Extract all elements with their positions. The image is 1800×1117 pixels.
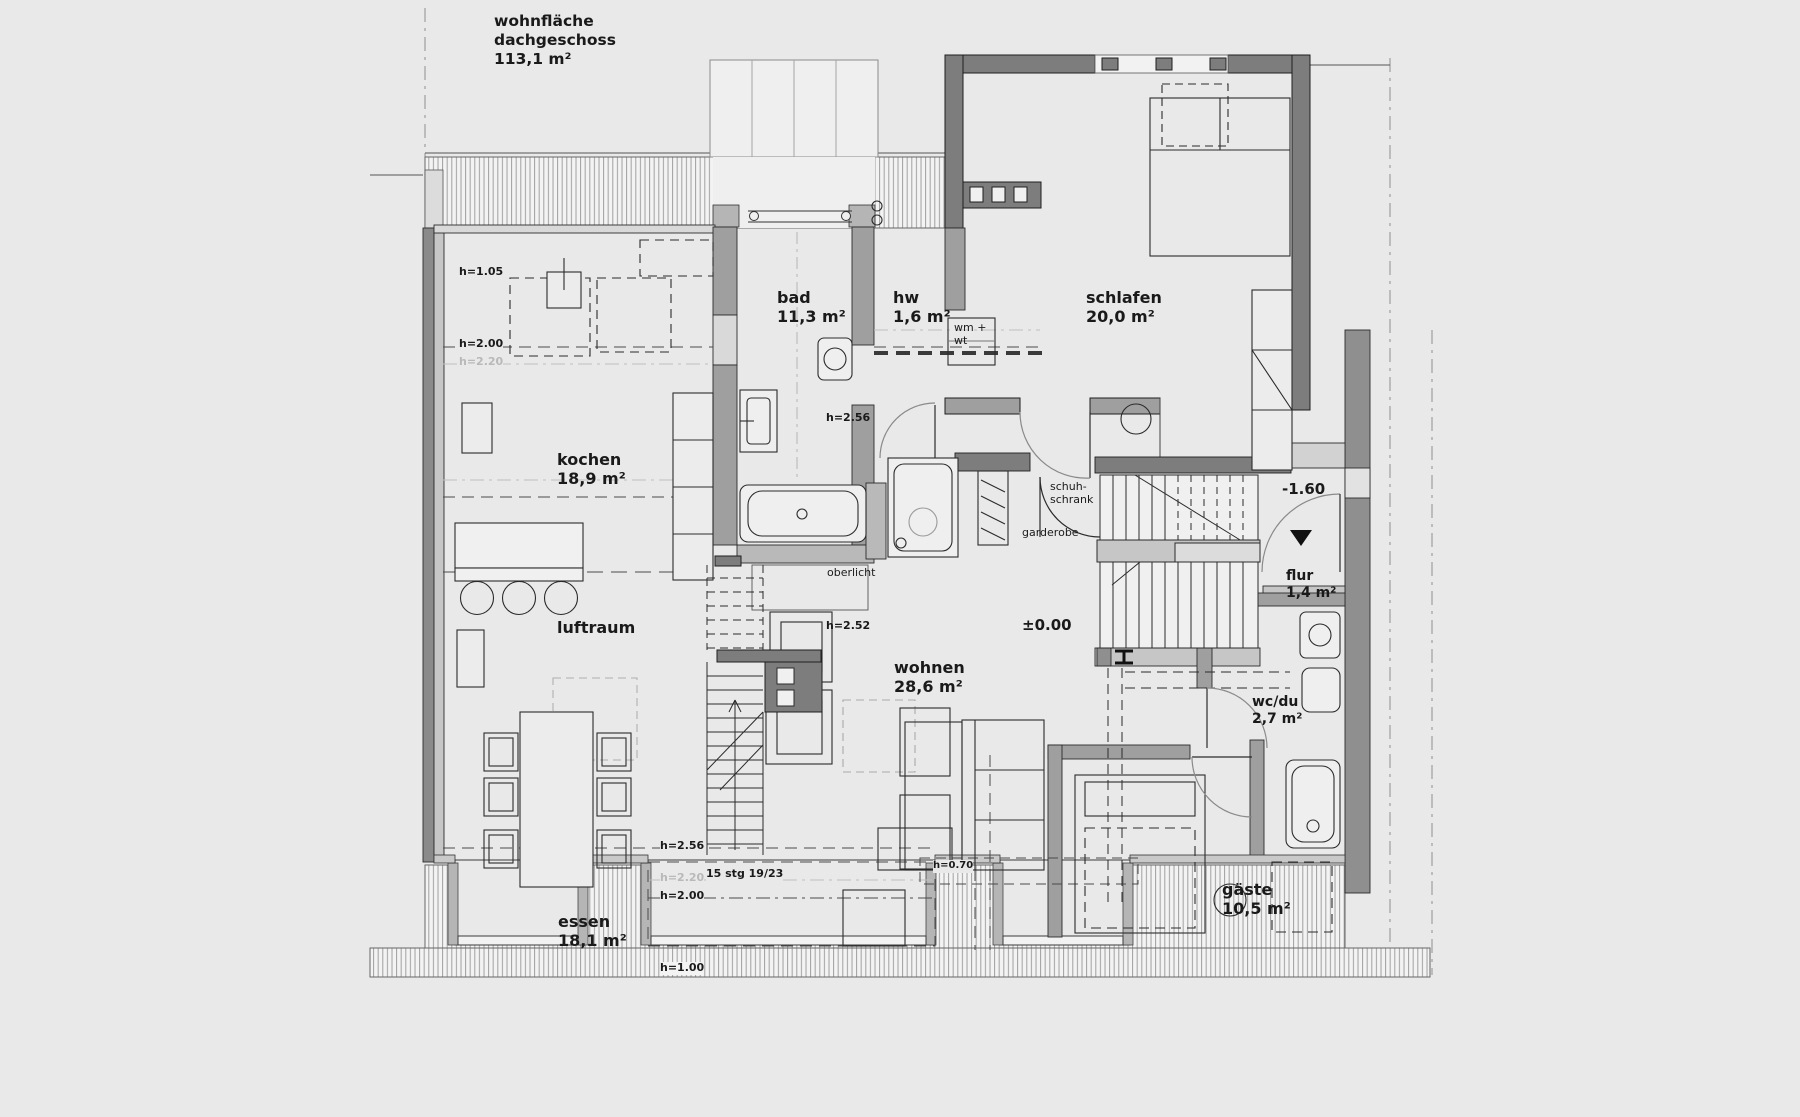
height-note-200-top: h=2.00 [459, 338, 503, 351]
level-marker-entry: -1.60 [1282, 480, 1325, 499]
schuhschrank-note: schuh- schrank [1050, 481, 1093, 506]
coat-rack [978, 471, 1008, 545]
oberlicht-note: oberlicht [827, 567, 875, 580]
room-label-schlafen: schlafen 20,0 m² [1086, 288, 1162, 326]
room-label-bad: bad 11,3 m² [777, 288, 846, 326]
level-marker-icon [1290, 530, 1312, 546]
height-note-100: h=1.00 [660, 962, 704, 975]
level-marker-main: ±0.00 [1022, 616, 1072, 635]
garderobe-note: garderobe [1022, 527, 1079, 540]
height-note-200-bottom: h=2.00 [660, 890, 704, 903]
height-note-256-bad: h=2.56 [826, 412, 870, 425]
wm-wt-note: wm + wt [954, 322, 986, 347]
height-note-220-bottom: h=2.20 [660, 872, 704, 885]
room-label-luftraum: luftraum [557, 618, 635, 637]
dormer-top-bad [710, 60, 878, 228]
floorplan-sheet: wohnfläche dachgeschoss 113,1 m² bad 11,… [0, 0, 1800, 1117]
floorplan-drawing [0, 0, 1800, 1117]
stair-count-note: 15 stg 19/23 [706, 868, 783, 881]
height-note-220-top: h=2.20 [459, 356, 503, 369]
interior-stairs [707, 556, 822, 855]
room-label-kochen: kochen 18,9 m² [557, 450, 626, 488]
room-label-wohnen: wohnen 28,6 m² [894, 658, 965, 696]
height-note-252: h=2.52 [826, 620, 870, 633]
height-note-070: h=0.70 [933, 860, 973, 873]
floor-area-note: wohnfläche dachgeschoss 113,1 m² [494, 12, 616, 69]
room-label-wcdu: wc/du 2,7 m² [1252, 694, 1302, 728]
room-label-flur: flur 1,4 m² [1286, 568, 1336, 602]
height-note-105: h=1.05 [459, 266, 503, 279]
room-label-gaeste: gäste 10,5 m² [1222, 880, 1291, 918]
height-note-256-bottom: h=2.56 [660, 840, 704, 853]
room-label-essen: essen 18,1 m² [558, 912, 627, 950]
room-label-hw: hw 1,6 m² [893, 288, 951, 326]
wcdu-fixtures [1286, 612, 1340, 848]
